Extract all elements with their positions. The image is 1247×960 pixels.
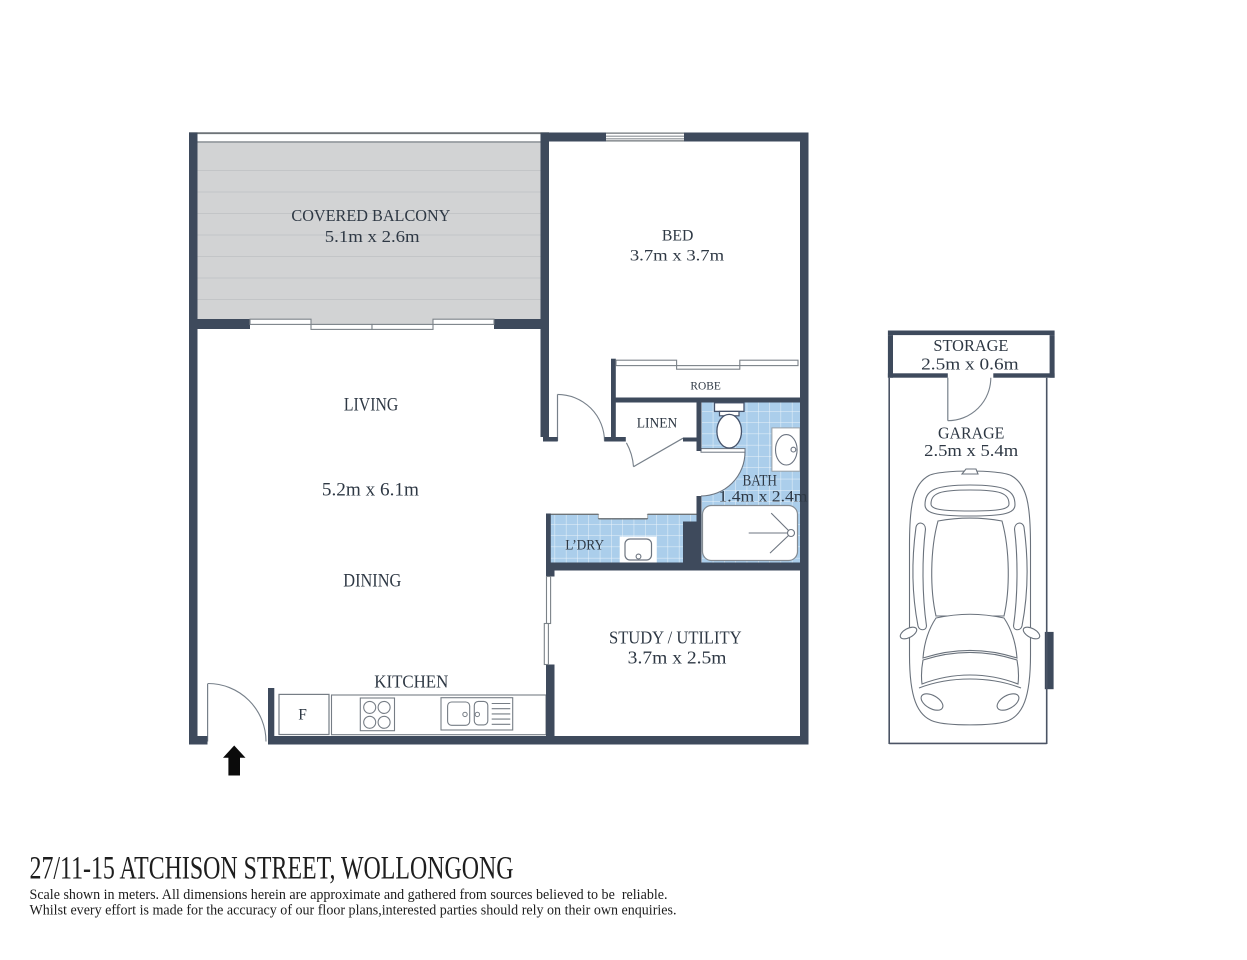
svg-text:3.7m x 3.7m: 3.7m x 3.7m <box>630 248 725 265</box>
svg-text:27/11-15 ATCHISON STREET, WOLL: 27/11-15 ATCHISON STREET, WOLLONGONG <box>30 851 514 887</box>
svg-text:STUDY / UTILITY: STUDY / UTILITY <box>609 627 742 647</box>
svg-text:BATH: BATH <box>743 472 777 489</box>
svg-text:ROBE: ROBE <box>690 378 720 392</box>
svg-text:DINING: DINING <box>343 571 401 592</box>
svg-text:5.2m x 6.1m: 5.2m x 6.1m <box>322 479 419 500</box>
svg-text:2.5m x 5.4m: 2.5m x 5.4m <box>924 441 1018 460</box>
svg-text:L’DRY: L’DRY <box>565 538 604 554</box>
svg-text:STORAGE: STORAGE <box>933 336 1008 355</box>
svg-text:COVERED BALCONY: COVERED BALCONY <box>291 206 450 225</box>
svg-text:5.1m x 2.6m: 5.1m x 2.6m <box>325 227 420 246</box>
svg-text:LIVING: LIVING <box>344 395 398 416</box>
svg-text:1.4m x 2.4m: 1.4m x 2.4m <box>719 489 808 506</box>
svg-text:F: F <box>298 707 307 724</box>
svg-text:2.5m x 0.6m: 2.5m x 0.6m <box>921 355 1019 374</box>
svg-text:KITCHEN: KITCHEN <box>374 671 448 691</box>
svg-text:GARAGE: GARAGE <box>938 424 1005 443</box>
svg-text:LINEN: LINEN <box>637 416 678 432</box>
svg-text:3.7m x 2.5m: 3.7m x 2.5m <box>628 648 727 668</box>
svg-text:Whilst every effort is made fo: Whilst every effort is made for the accu… <box>30 901 677 918</box>
svg-text:BED: BED <box>662 227 694 244</box>
